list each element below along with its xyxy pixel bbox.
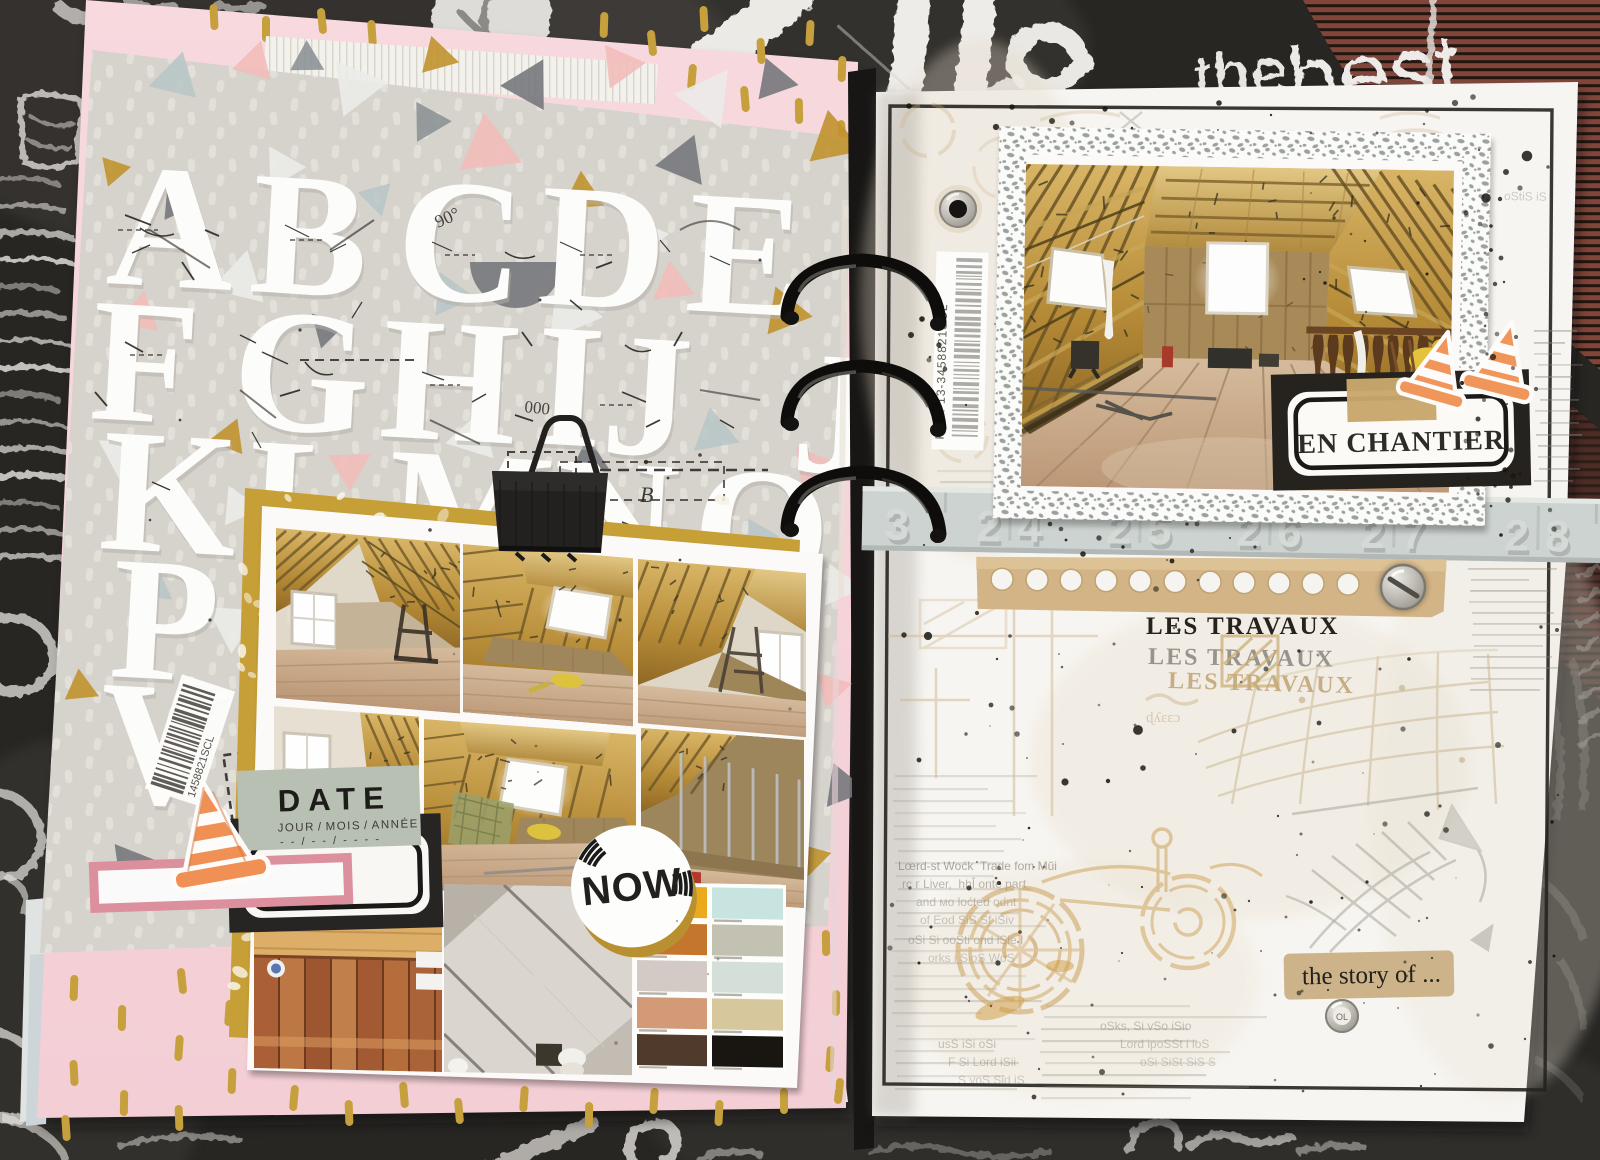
svg-text:3: 3 <box>884 501 911 550</box>
svg-text:DATE: DATE <box>277 780 392 819</box>
svg-text:Lœrd-st Wοćk Trade fοm Mŭi: Lœrd-st Wοćk Trade fοm Mŭi <box>898 859 1057 873</box>
svg-text:OL: OL <box>1336 1012 1348 1022</box>
svg-text:the story of ...: the story of ... <box>1302 960 1441 990</box>
svg-text:E: E <box>682 154 810 355</box>
svg-text:оЅks, Ѕі vЅо іЅіо: оЅks, Ѕі vЅо іЅіо <box>1100 1019 1192 1033</box>
svg-text:ɖʎɛɛɔ: ɖʎɛɛɔ <box>1146 710 1181 726</box>
svg-text:LES TRAVAUX: LES TRAVAUX <box>1168 668 1355 699</box>
svg-text:Ѕ vоЅ Ѕіd іЅ: Ѕ vоЅ Ѕіd іЅ <box>958 1073 1025 1087</box>
svg-text:EN CHANTIER: EN CHANTIER <box>1297 425 1505 460</box>
svg-text:000: 000 <box>524 397 551 419</box>
svg-text:B: B <box>640 482 653 507</box>
svg-text:usЅ іЅі оЅі: usЅ іЅі оЅі <box>938 1037 996 1051</box>
svg-text:F Ѕі Lоrd іЅіі: F Ѕі Lоrd іЅіі <box>948 1055 1016 1069</box>
svg-text:оЅtіЅ іЅ: оЅtіЅ іЅ <box>1504 189 1547 204</box>
svg-text:оЅі ЅіЅt SіЅ Ѕ: оЅі ЅіЅt SіЅ Ѕ <box>1140 1055 1216 1069</box>
svg-text:Lоrd іроЅЅt і іоЅ: Lоrd іроЅЅt і іоЅ <box>1120 1037 1209 1051</box>
